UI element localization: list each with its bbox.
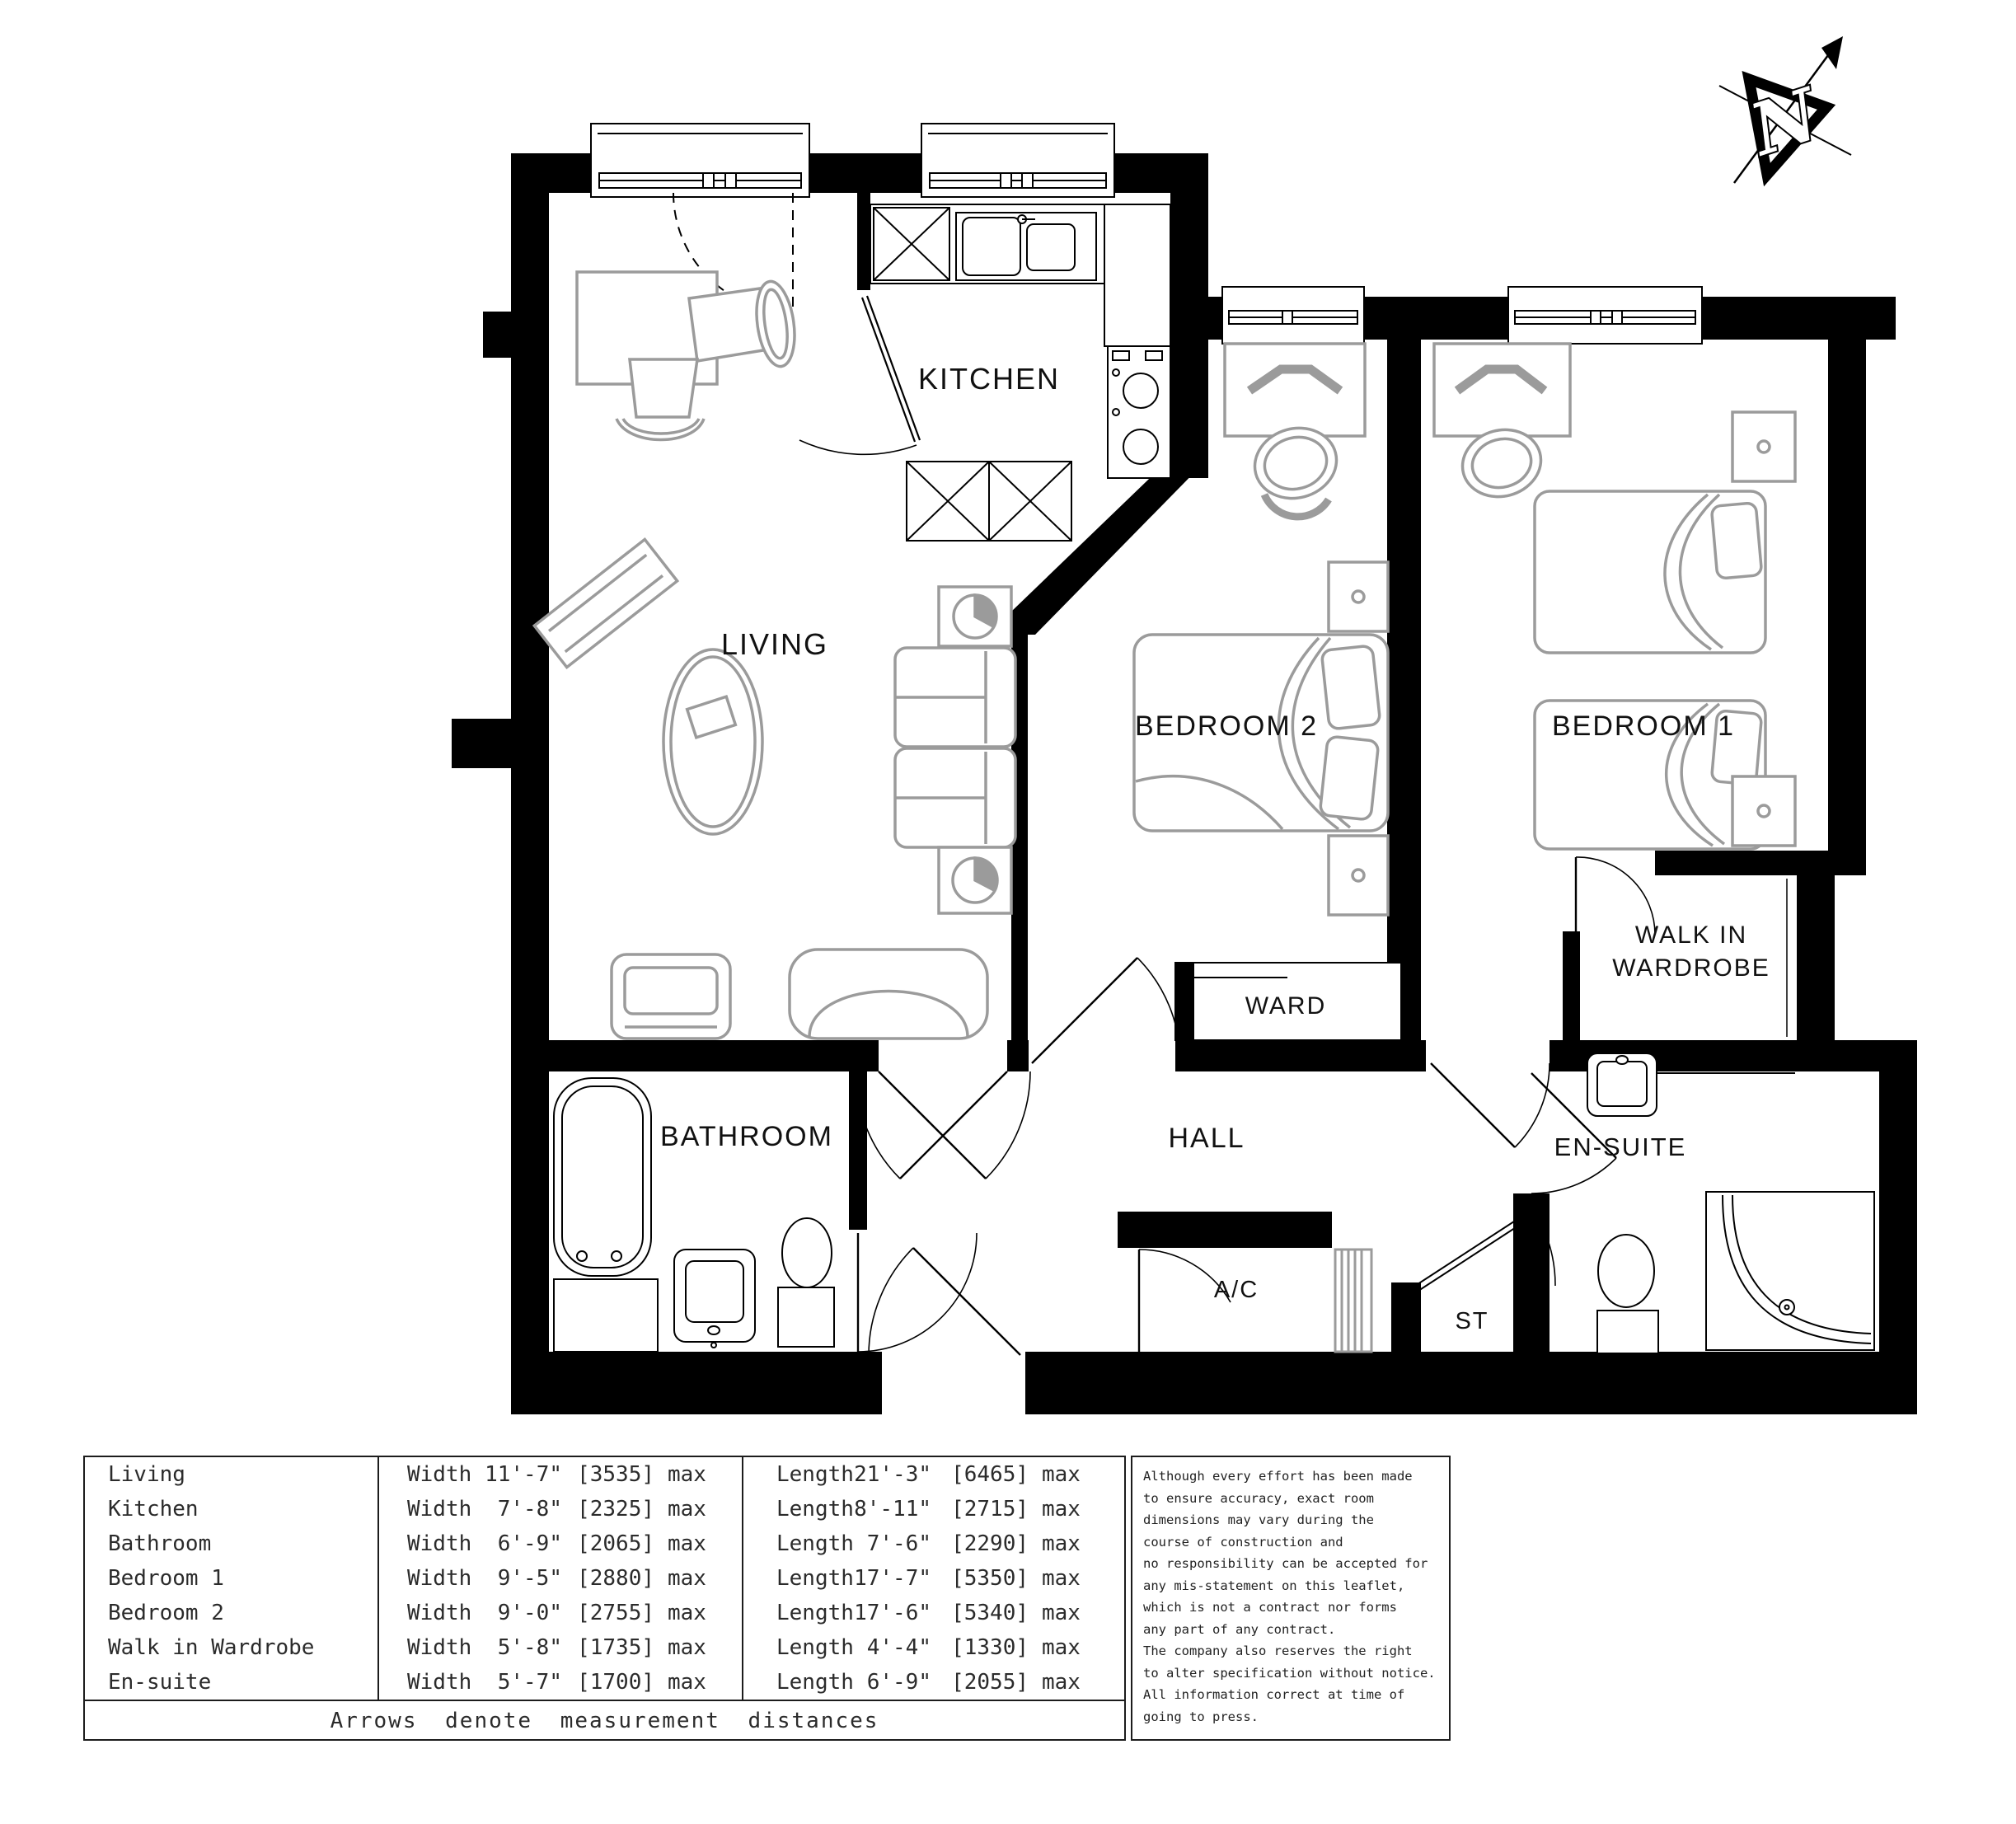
length-label: Length (742, 1457, 839, 1492)
table-row: Kitchen Width 7'-8" [2325] max Length 8'… (85, 1492, 1124, 1526)
width-label: Width (377, 1665, 470, 1700)
coffee-table (663, 649, 762, 834)
bedroom2-label: BEDROOM 2 (1135, 710, 1318, 742)
bathtub (554, 1078, 651, 1276)
width-label: Width (377, 1630, 470, 1665)
width-value: 7'-8" (470, 1497, 562, 1522)
length-value: 17'-6" (839, 1601, 931, 1625)
room-name: Bedroom 1 (85, 1566, 377, 1591)
length-mm: [2055] (931, 1670, 1037, 1695)
max-label: max (663, 1462, 742, 1487)
length-value: 17'-7" (839, 1566, 931, 1591)
hall-label: HALL (1168, 1123, 1245, 1154)
max-label: max (1037, 1601, 1124, 1625)
ac-label: A/C (1214, 1277, 1259, 1303)
radiator (1335, 1250, 1371, 1352)
walkin-label-line2: WARDROBE (1612, 954, 1770, 982)
width-value: 9'-0" (470, 1601, 562, 1625)
width-mm: [1700] (562, 1670, 663, 1695)
length-value: 21'-3" (839, 1462, 931, 1487)
speaker-unit-bottom (939, 847, 1011, 913)
max-label: max (1037, 1635, 1124, 1660)
living-window (591, 124, 809, 197)
bedroom2-door (1032, 958, 1180, 1063)
bathroom-toilet (778, 1218, 834, 1347)
sideboard (534, 539, 677, 667)
length-mm: [6465] (931, 1462, 1037, 1487)
length-label: Length (742, 1526, 839, 1561)
max-label: max (663, 1497, 742, 1522)
table-row: Bedroom 1 Width 9'-5" [2880] max Length … (85, 1561, 1124, 1596)
desk (1225, 344, 1365, 436)
width-label: Width (377, 1596, 470, 1630)
max-label: max (663, 1566, 742, 1591)
living-hall-doors (856, 1071, 1030, 1179)
bedroom1-label: BEDROOM 1 (1552, 710, 1735, 742)
north-arrow-icon: N (1719, 36, 1851, 183)
width-mm: [1735] (562, 1635, 663, 1660)
bedroom1-furniture (1434, 344, 1795, 849)
length-mm: [2715] (931, 1497, 1037, 1522)
bathroom-fixtures (554, 1078, 834, 1352)
kitchen-window (921, 124, 1114, 197)
length-mm: [1330] (931, 1635, 1037, 1660)
room-name: Living (85, 1462, 377, 1487)
floorplan-page: LIVING KITCHEN BEDROOM 2 BEDROOM 1 WALK … (0, 0, 2016, 1824)
table-footer-note: Arrows denote measurement distances (85, 1700, 1124, 1741)
length-value: 8'-11" (839, 1497, 931, 1522)
width-mm: [2065] (562, 1531, 663, 1556)
kitchen-label: KITCHEN (918, 362, 1060, 396)
kitchen-base-units (907, 462, 1071, 541)
bedroom1-window (1508, 287, 1702, 344)
table-row: Living Width 11'-7" [3535] max Length 21… (85, 1457, 1124, 1492)
length-mm: [2290] (931, 1531, 1037, 1556)
stove (1108, 346, 1170, 478)
armchair (612, 954, 730, 1039)
length-mm: [5350] (931, 1566, 1037, 1591)
bathroom-label: BATHROOM (660, 1121, 833, 1152)
width-label: Width (377, 1492, 470, 1526)
width-label: Width (377, 1457, 470, 1492)
length-mm: [5340] (931, 1601, 1037, 1625)
width-value: 11'-7" (470, 1462, 562, 1487)
max-label: max (1037, 1566, 1124, 1591)
length-label: Length (742, 1596, 839, 1630)
walkin-label-line1: WALK IN (1635, 921, 1747, 949)
ensuite-shower (1706, 1192, 1874, 1350)
max-label: max (663, 1531, 742, 1556)
length-value: 7'-6" (839, 1531, 931, 1556)
bathroom-sink (674, 1250, 755, 1348)
max-label: max (663, 1670, 742, 1695)
room-name: Bathroom (85, 1531, 377, 1556)
width-mm: [2755] (562, 1601, 663, 1625)
living-label: LIVING (721, 627, 828, 661)
width-mm: [2880] (562, 1566, 663, 1591)
length-value: 6'-9" (839, 1670, 931, 1695)
max-label: max (1037, 1531, 1124, 1556)
width-mm: [3535] (562, 1462, 663, 1487)
desk (1434, 344, 1570, 436)
ensuite-fixtures (1587, 1053, 1874, 1353)
bedroom1-door (1431, 1063, 1550, 1147)
table-row: Bedroom 2 Width 9'-0" [2755] max Length … (85, 1596, 1124, 1630)
single-bed-a (1535, 491, 1765, 653)
sofa-a (895, 648, 1015, 747)
loveseat (790, 950, 987, 1039)
length-label: Length (742, 1492, 839, 1526)
ward-label: WARD (1245, 992, 1327, 1020)
room-name: Walk in Wardrobe (85, 1635, 377, 1660)
max-label: max (663, 1601, 742, 1625)
ensuite-toilet (1597, 1235, 1658, 1353)
width-value: 9'-5" (470, 1566, 562, 1591)
max-label: max (1037, 1462, 1124, 1487)
sofa-b (895, 748, 1015, 847)
width-label: Width (377, 1526, 470, 1561)
front-door (869, 1248, 1020, 1355)
max-label: max (1037, 1497, 1124, 1522)
table-row: En-suite Width 5'-7" [1700] max Length 6… (85, 1665, 1124, 1700)
kitchen-door (799, 296, 920, 454)
speaker-unit-top (939, 587, 1011, 646)
max-label: max (663, 1635, 742, 1660)
width-label: Width (377, 1561, 470, 1596)
dimensions-table: Living Width 11'-7" [3535] max Length 21… (83, 1456, 1126, 1741)
room-name: Kitchen (85, 1497, 377, 1522)
st-label: ST (1455, 1308, 1489, 1334)
room-name: En-suite (85, 1670, 377, 1695)
length-value: 4'-4" (839, 1635, 931, 1660)
width-value: 6'-9" (470, 1531, 562, 1556)
ensuite-label: EN-SUITE (1554, 1132, 1687, 1161)
stool (630, 359, 697, 417)
max-label: max (1037, 1670, 1124, 1695)
table-row: Walk in Wardrobe Width 5'-8" [1735] max … (85, 1630, 1124, 1665)
table-row: Bathroom Width 6'-9" [2065] max Length 7… (85, 1526, 1124, 1561)
bedroom2-window (1222, 287, 1364, 344)
width-mm: [2325] (562, 1497, 663, 1522)
room-name: Bedroom 2 (85, 1601, 377, 1625)
width-value: 5'-7" (470, 1670, 562, 1695)
width-value: 5'-8" (470, 1635, 562, 1660)
disclaimer-text: Although every effort has been made to e… (1131, 1456, 1451, 1741)
length-label: Length (742, 1630, 839, 1665)
length-label: Length (742, 1665, 839, 1700)
length-label: Length (742, 1561, 839, 1596)
